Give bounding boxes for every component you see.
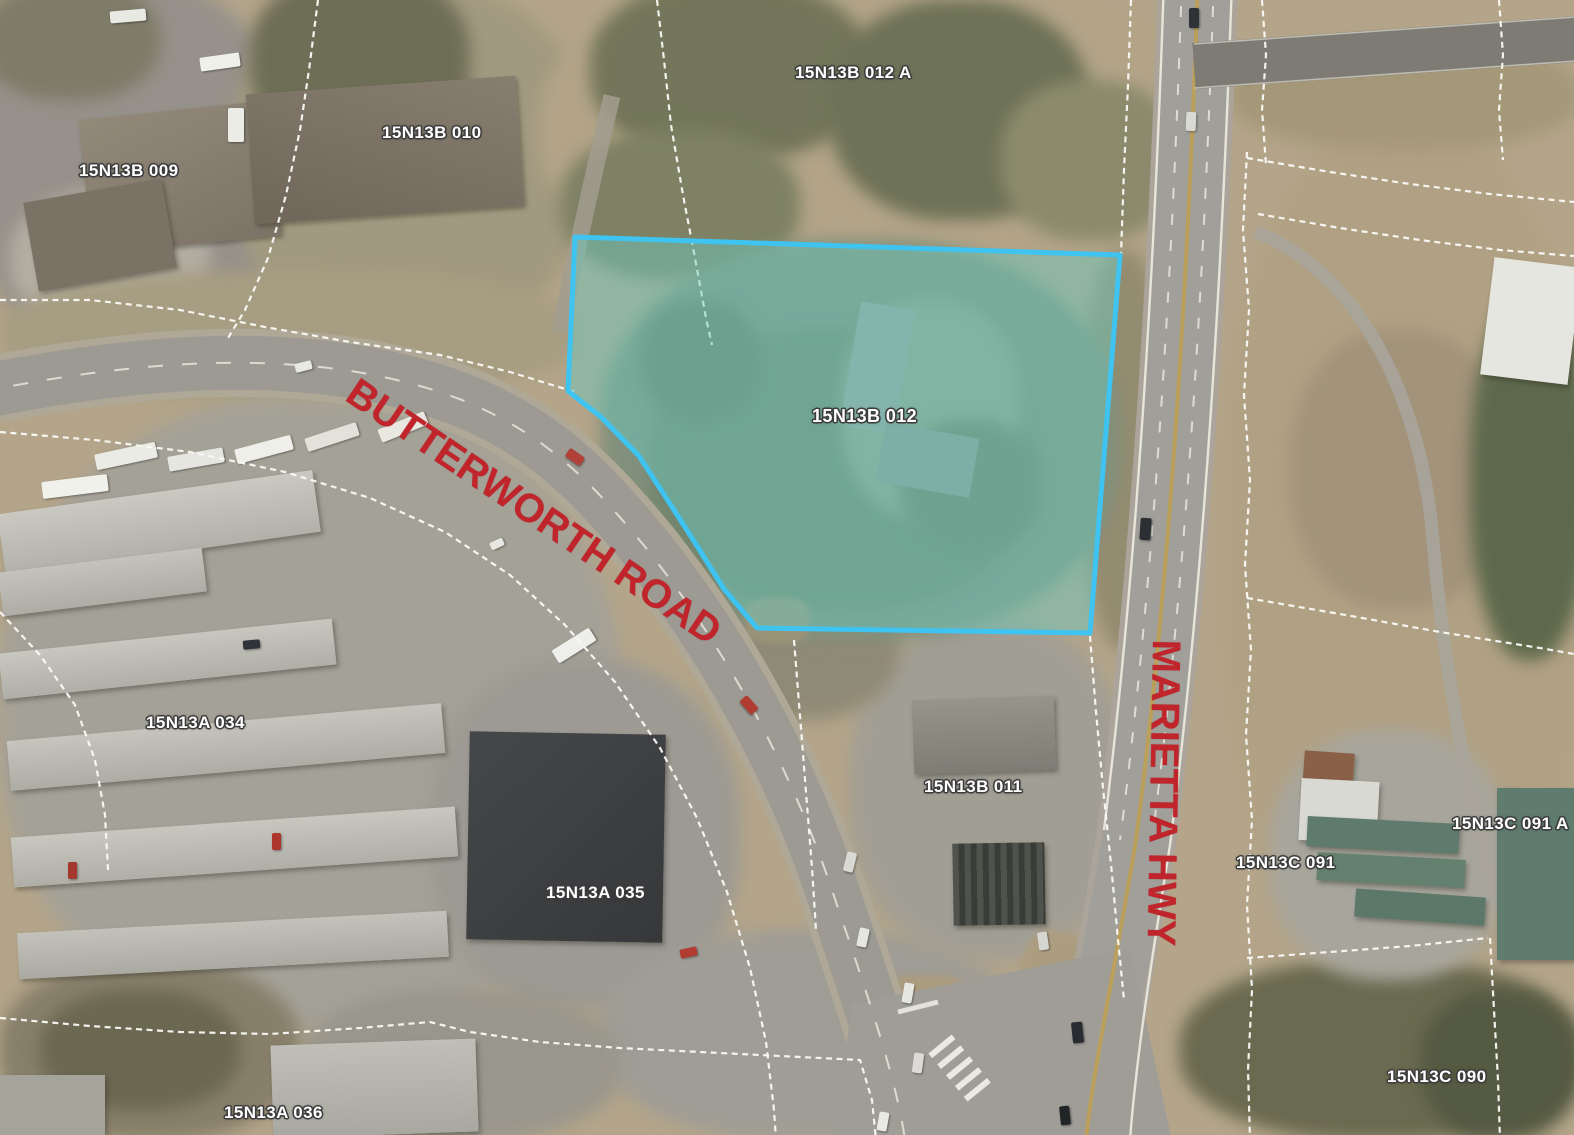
- aerial-parcel-map[interactable]: 15N13B 012 A 15N13B 010 15N13B 009 15N13…: [0, 0, 1574, 1135]
- parcel-label-011: 15N13B 011: [924, 777, 1023, 797]
- parcel-boundary-line: [0, 612, 108, 870]
- parcel-boundary-line: [0, 300, 575, 392]
- parcel-boundary-line: [1262, 0, 1266, 165]
- parcel-label-090: 15N13C 090: [1387, 1067, 1486, 1087]
- parcel-label-036: 15N13A 036: [224, 1103, 323, 1123]
- parcel-label-012a: 15N13B 012 A: [795, 63, 912, 83]
- parcel-overlay-layer: [0, 0, 1574, 1135]
- parcel-boundary-line: [1490, 938, 1500, 1135]
- parcel-boundary-line: [0, 432, 776, 1135]
- parcel-label-010: 15N13B 010: [382, 123, 481, 143]
- parcel-boundary-line: [1247, 158, 1574, 202]
- parcel-boundary-line: [1499, 0, 1503, 160]
- road-label-marietta: MARIETTA HWY: [1141, 639, 1186, 946]
- parcel-label-035: 15N13A 035: [546, 883, 645, 903]
- parcel-label-091: 15N13C 091: [1236, 853, 1335, 873]
- parcel-boundary-line: [1247, 598, 1574, 654]
- parcel-boundary-line: [1090, 636, 1124, 1000]
- parcel-boundary-line: [0, 1018, 876, 1135]
- parcel-label-012-highlighted: 15N13B 012: [812, 406, 917, 427]
- parcel-label-034: 15N13A 034: [146, 713, 245, 733]
- parcel-label-091a: 15N13C 091 A: [1452, 814, 1569, 834]
- parcel-label-009: 15N13B 009: [79, 161, 178, 181]
- parcel-boundary-line: [794, 640, 816, 930]
- parcel-boundary-line: [1247, 938, 1488, 958]
- parcel-boundary-line: [1258, 214, 1574, 256]
- parcel-boundary-line: [228, 0, 318, 338]
- parcel-boundary-line: [1121, 0, 1131, 255]
- parcel-boundary-line: [1243, 152, 1252, 1135]
